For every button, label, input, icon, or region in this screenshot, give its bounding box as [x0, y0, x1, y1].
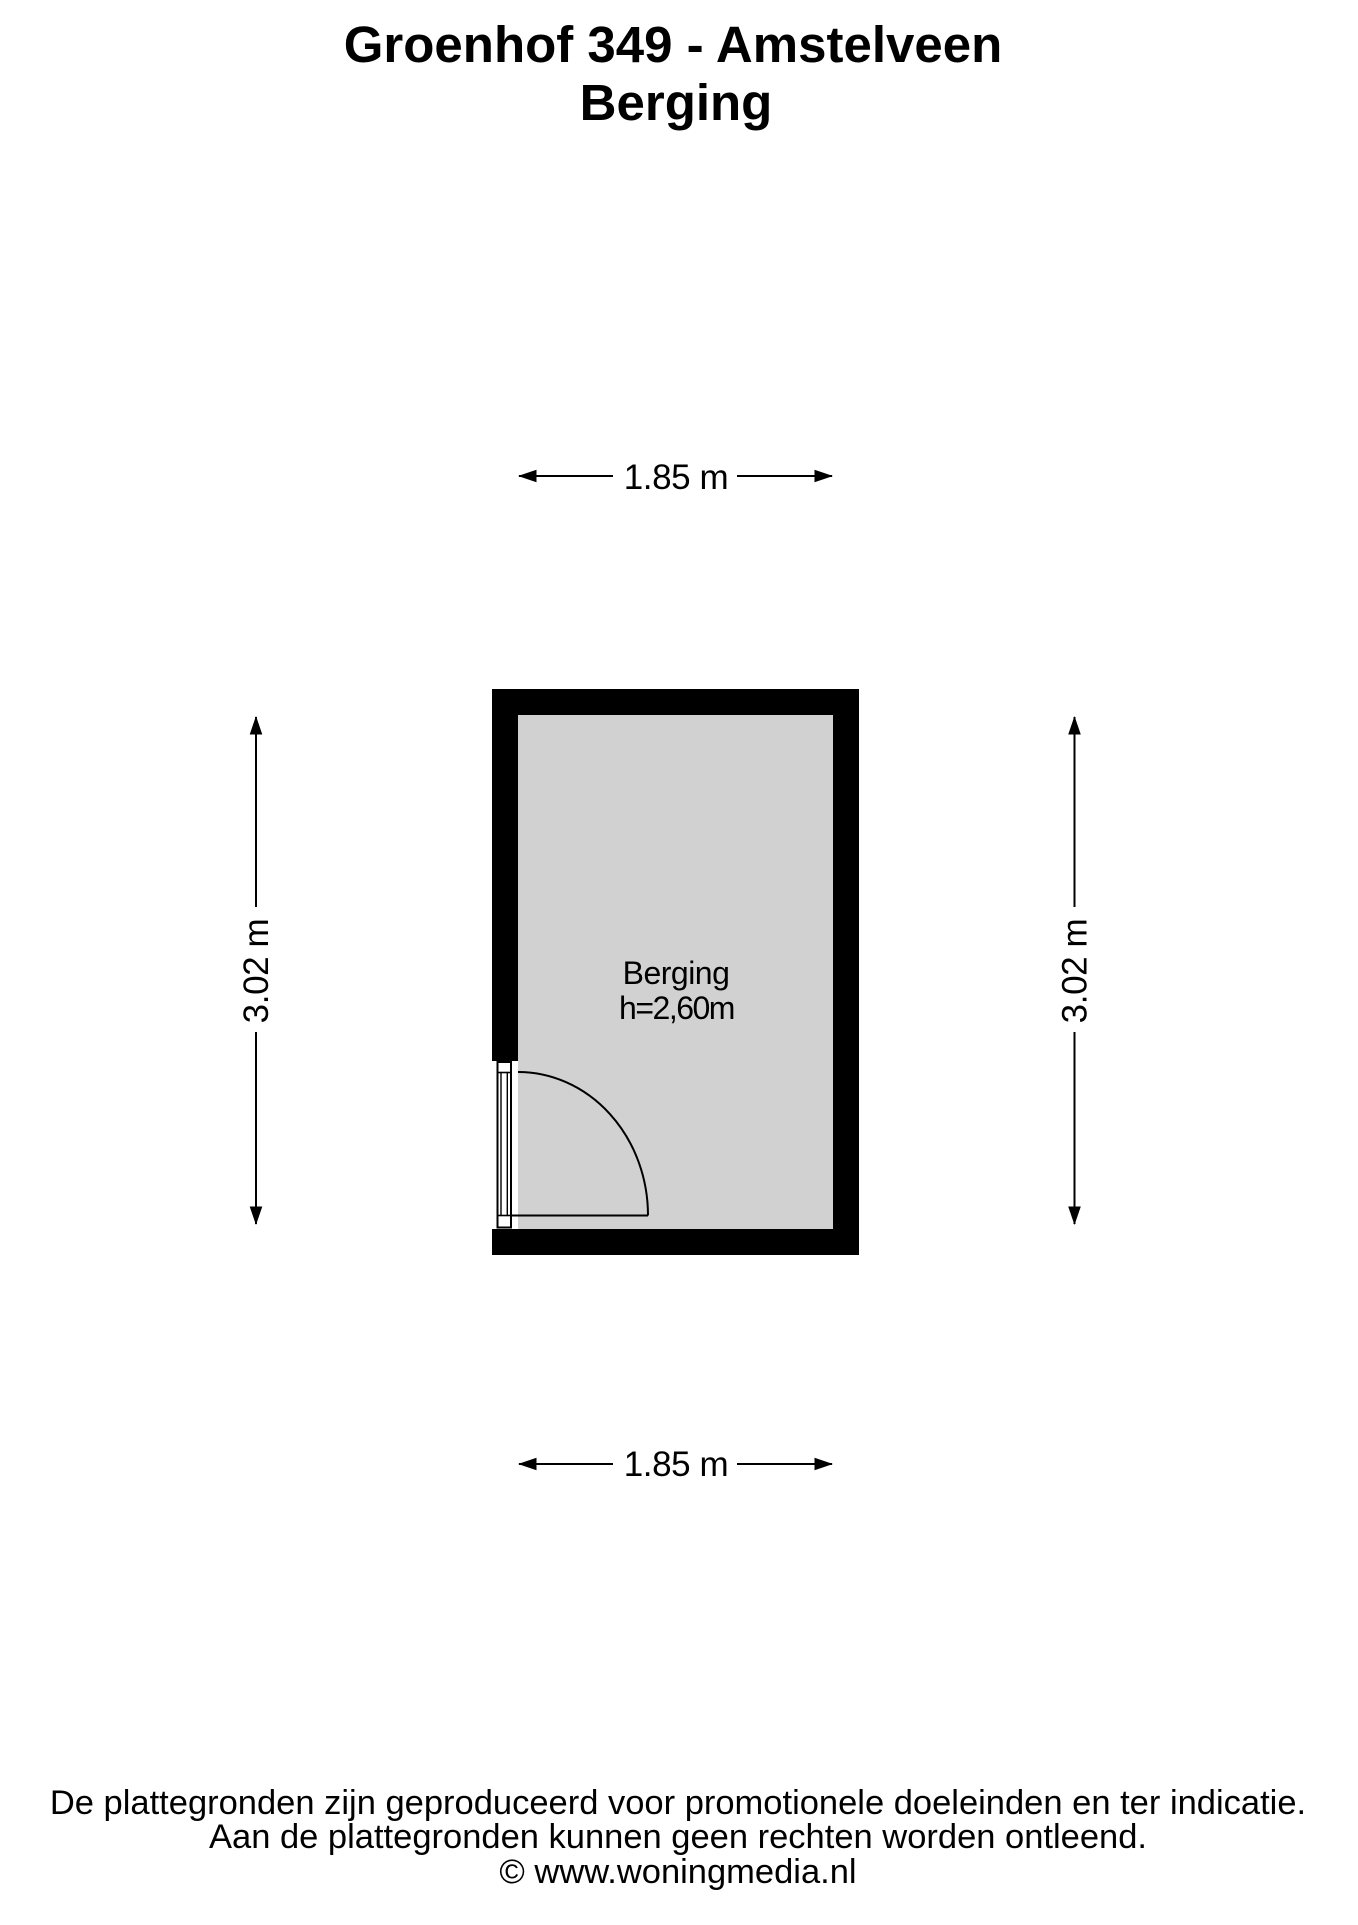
svg-text:h=2,60m: h=2,60m [619, 990, 734, 1026]
svg-text:Aan de plattegronden kunnen ge: Aan de plattegronden kunnen geen rechten… [209, 1818, 1147, 1856]
svg-text:Groenhof 349 - Amstelveen: Groenhof 349 - Amstelveen [344, 16, 1002, 73]
svg-text:3.02 m: 3.02 m [1056, 919, 1095, 1024]
svg-text:1.85 m: 1.85 m [624, 1445, 729, 1484]
svg-text:Berging: Berging [623, 955, 730, 991]
svg-text:De plattegronden zijn geproduc: De plattegronden zijn geproduceerd voor … [50, 1784, 1306, 1822]
svg-text:Berging: Berging [580, 74, 773, 131]
svg-text:3.02 m: 3.02 m [237, 919, 276, 1024]
svg-text:1.85 m: 1.85 m [624, 458, 729, 497]
svg-text:© www.woningmedia.nl: © www.woningmedia.nl [499, 1853, 856, 1891]
